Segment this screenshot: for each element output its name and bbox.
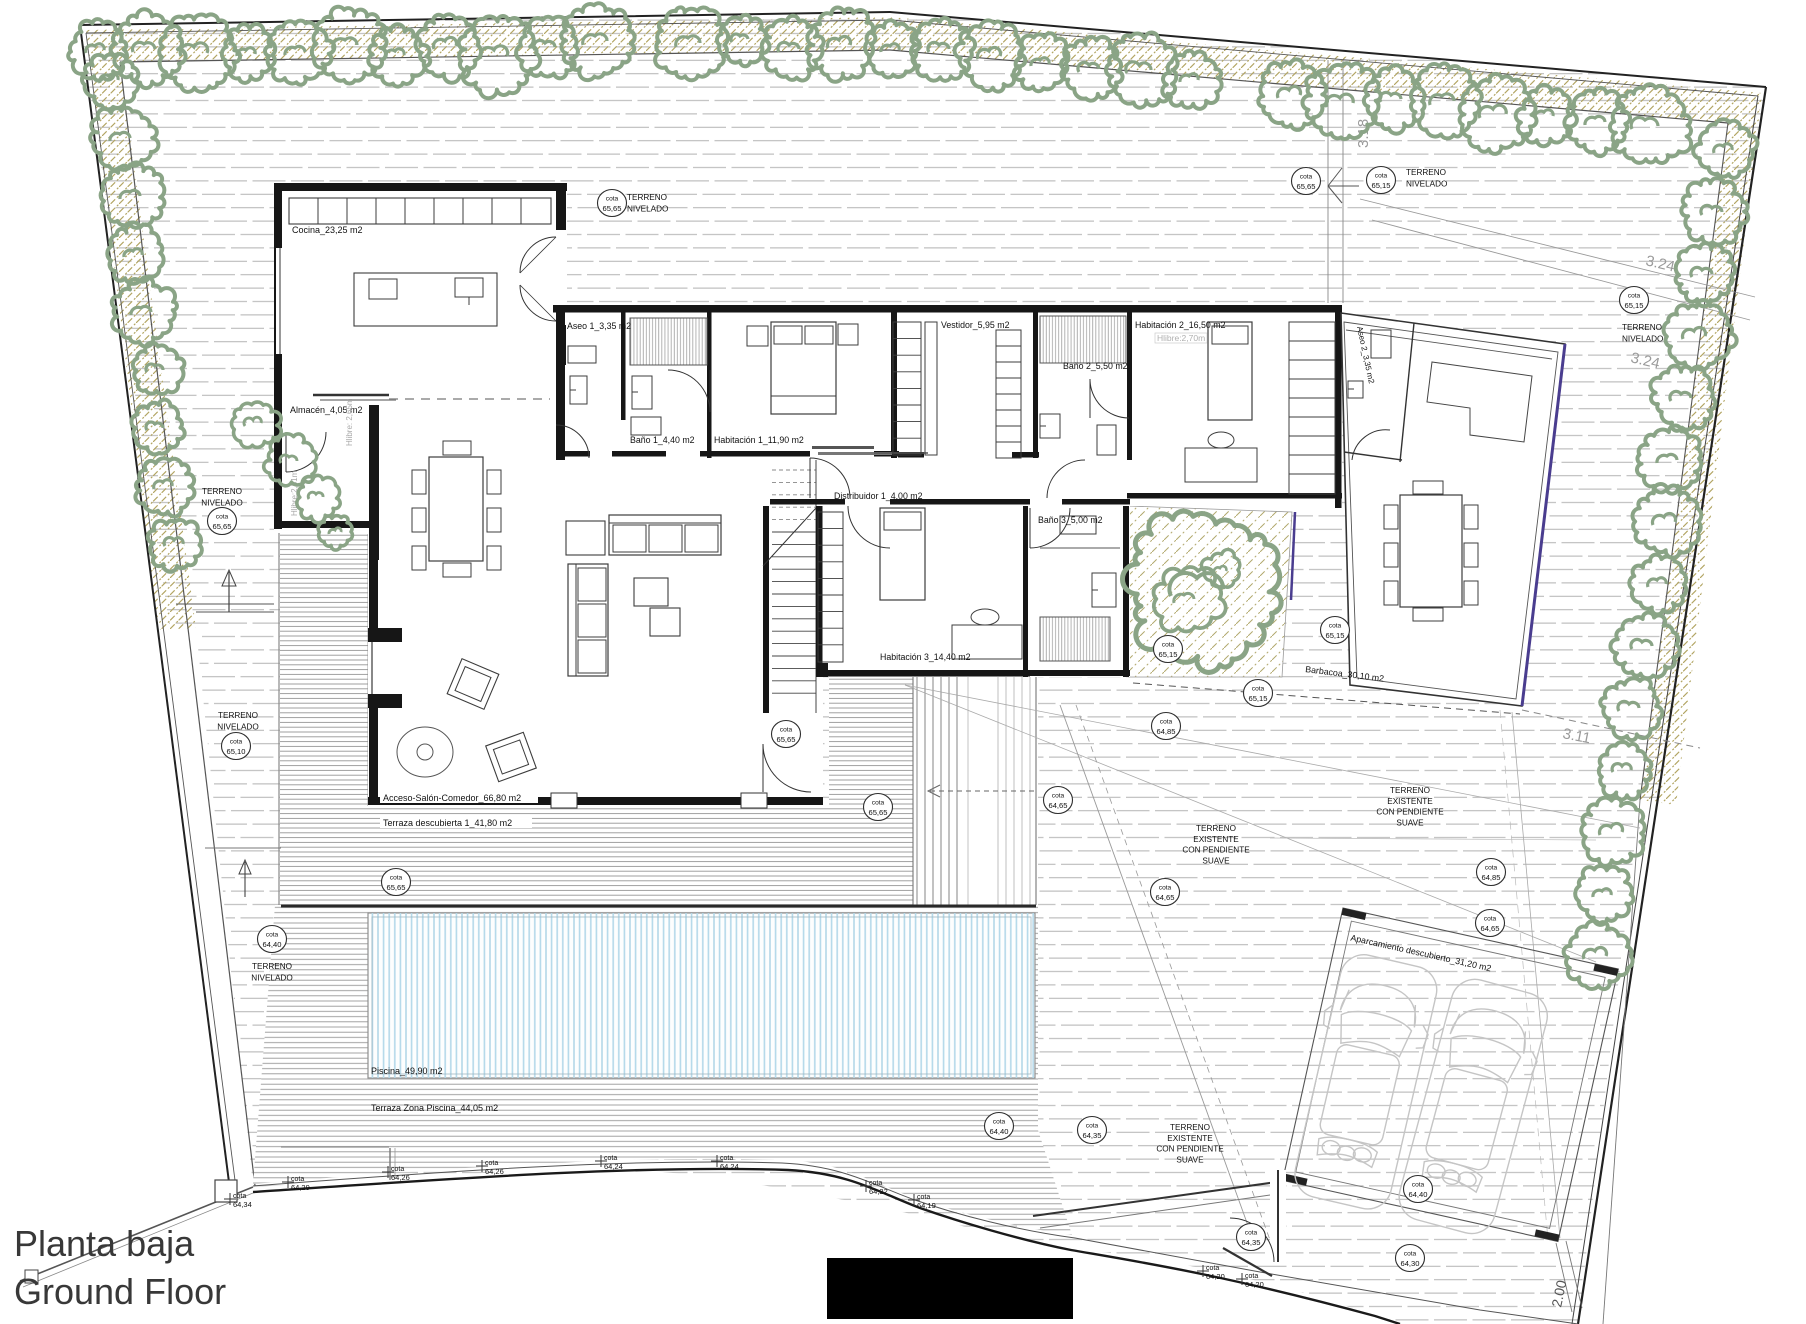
- svg-text:TERRENO: TERRENO: [1196, 824, 1236, 833]
- svg-text:64,65: 64,65: [1480, 924, 1499, 933]
- svg-text:64,24: 64,24: [720, 1162, 739, 1171]
- svg-text:cota: cota: [233, 1193, 246, 1200]
- svg-text:CON PENDIENTE: CON PENDIENTE: [1376, 808, 1444, 817]
- svg-text:SUAVE: SUAVE: [1176, 1155, 1204, 1164]
- svg-text:cota: cota: [1052, 793, 1065, 800]
- svg-text:Baño 1_4,40 m2: Baño 1_4,40 m2: [630, 435, 695, 445]
- svg-text:TERRENO: TERRENO: [218, 711, 258, 720]
- svg-text:64,40: 64,40: [262, 940, 281, 949]
- svg-text:cota: cota: [1086, 1123, 1099, 1130]
- svg-text:EXISTENTE: EXISTENTE: [1167, 1134, 1213, 1143]
- svg-text:Baño 3_5,00 m2: Baño 3_5,00 m2: [1038, 515, 1103, 525]
- svg-text:64,35: 64,35: [1241, 1238, 1260, 1247]
- svg-text:Distribuidor 1_4,00 m2: Distribuidor 1_4,00 m2: [834, 491, 923, 501]
- svg-text:cota: cota: [1375, 173, 1388, 180]
- svg-text:64,26: 64,26: [391, 1173, 410, 1182]
- svg-text:Aseo 1_3,35 m2: Aseo 1_3,35 m2: [567, 321, 631, 331]
- svg-text:Hlibre: 2,65m: Hlibre: 2,65m: [345, 398, 354, 446]
- svg-text:65,10: 65,10: [226, 747, 245, 756]
- svg-text:cota: cota: [780, 727, 793, 734]
- svg-text:NIVELADO: NIVELADO: [1622, 335, 1663, 344]
- svg-text:cota: cota: [872, 800, 885, 807]
- svg-text:64,20: 64,20: [1245, 1280, 1264, 1289]
- svg-text:cota: cota: [1412, 1182, 1425, 1189]
- svg-text:cota: cota: [1245, 1273, 1258, 1280]
- svg-text:TERRENO: TERRENO: [1170, 1123, 1210, 1132]
- svg-text:Acceso-Salón-Comedor_66,80 m2: Acceso-Salón-Comedor_66,80 m2: [383, 793, 521, 803]
- svg-text:64,35: 64,35: [1082, 1131, 1101, 1140]
- svg-text:Terraza Zona Piscina_44,05 m2: Terraza Zona Piscina_44,05 m2: [371, 1103, 498, 1113]
- svg-text:cota: cota: [869, 1180, 882, 1187]
- svg-text:TERRENO: TERRENO: [627, 193, 667, 202]
- svg-text:64,20: 64,20: [1206, 1272, 1225, 1281]
- svg-text:cota: cota: [230, 739, 243, 746]
- svg-text:65,65: 65,65: [602, 204, 621, 213]
- svg-text:NIVELADO: NIVELADO: [201, 499, 242, 508]
- svg-text:cota: cota: [485, 1160, 498, 1167]
- svg-text:Baño 2_5,50 m2: Baño 2_5,50 m2: [1063, 361, 1128, 371]
- svg-text:65,15: 65,15: [1248, 694, 1267, 703]
- svg-text:cota: cota: [1628, 293, 1641, 300]
- svg-text:64,24: 64,24: [604, 1162, 623, 1171]
- svg-text:NIVELADO: NIVELADO: [1406, 180, 1447, 189]
- svg-text:cota: cota: [1245, 1230, 1258, 1237]
- svg-text:cota: cota: [1206, 1265, 1219, 1272]
- svg-text:cota: cota: [216, 514, 229, 521]
- svg-text:NIVELADO: NIVELADO: [251, 974, 292, 983]
- svg-text:64,85: 64,85: [1156, 727, 1175, 736]
- svg-text:cota: cota: [291, 1176, 304, 1183]
- svg-text:TERRENO: TERRENO: [1390, 786, 1430, 795]
- svg-text:64,34: 64,34: [233, 1200, 252, 1209]
- svg-text:cota: cota: [390, 875, 403, 882]
- svg-text:65,65: 65,65: [776, 735, 795, 744]
- svg-text:Planta baja: Planta baja: [14, 1223, 195, 1264]
- svg-text:CON PENDIENTE: CON PENDIENTE: [1156, 1145, 1224, 1154]
- svg-text:cota: cota: [1160, 719, 1173, 726]
- svg-text:Terraza descubierta 1_41,80 m2: Terraza descubierta 1_41,80 m2: [383, 818, 512, 828]
- svg-text:TERRENO: TERRENO: [1622, 323, 1662, 332]
- svg-text:Vestidor_5,95 m2: Vestidor_5,95 m2: [941, 320, 1010, 330]
- svg-text:64,22: 64,22: [869, 1187, 888, 1196]
- svg-text:TERRENO: TERRENO: [1406, 168, 1446, 177]
- svg-text:Habitación 1_11,90 m2: Habitación 1_11,90 m2: [714, 435, 804, 445]
- svg-text:cota: cota: [1484, 916, 1497, 923]
- svg-text:SUAVE: SUAVE: [1396, 818, 1424, 827]
- svg-text:Habitación 3_14,40 m2: Habitación 3_14,40 m2: [880, 652, 971, 662]
- svg-text:64,85: 64,85: [1481, 873, 1500, 882]
- svg-text:65,15: 65,15: [1158, 650, 1177, 659]
- svg-text:CON PENDIENTE: CON PENDIENTE: [1182, 846, 1250, 855]
- svg-text:64,65: 64,65: [1048, 801, 1067, 810]
- svg-text:cota: cota: [720, 1155, 733, 1162]
- svg-text:65,15: 65,15: [1624, 301, 1643, 310]
- svg-text:cota: cota: [1252, 686, 1265, 693]
- svg-text:cota: cota: [993, 1119, 1006, 1126]
- svg-text:65,65: 65,65: [386, 883, 405, 892]
- svg-text:Habitación 2_16,50 m2: Habitación 2_16,50 m2: [1135, 320, 1226, 330]
- svg-text:cota: cota: [917, 1194, 930, 1201]
- svg-text:65,65: 65,65: [212, 522, 231, 531]
- svg-text:Cocina_23,25 m2: Cocina_23,25 m2: [292, 225, 363, 235]
- svg-text:Hlibre:2,70m: Hlibre:2,70m: [1157, 333, 1205, 343]
- svg-text:cota: cota: [1329, 623, 1342, 630]
- svg-text:cota: cota: [1404, 1251, 1417, 1258]
- svg-text:cota: cota: [604, 1155, 617, 1162]
- svg-text:NIVELADO: NIVELADO: [217, 723, 258, 732]
- svg-text:65,15: 65,15: [1325, 631, 1344, 640]
- svg-text:TERRENO: TERRENO: [252, 962, 292, 971]
- svg-text:65,65: 65,65: [1296, 182, 1315, 191]
- svg-text:cota: cota: [1485, 865, 1498, 872]
- svg-text:SUAVE: SUAVE: [1202, 856, 1230, 865]
- svg-text:65,65: 65,65: [868, 808, 887, 817]
- svg-text:EXISTENTE: EXISTENTE: [1193, 835, 1239, 844]
- svg-text:Piscina_49,90 m2: Piscina_49,90 m2: [371, 1066, 443, 1076]
- svg-text:Ground Floor: Ground Floor: [14, 1271, 226, 1312]
- svg-text:64,40: 64,40: [989, 1127, 1008, 1136]
- svg-text:64,29: 64,29: [291, 1183, 310, 1192]
- svg-text:64,26: 64,26: [485, 1167, 504, 1176]
- svg-text:cota: cota: [266, 932, 279, 939]
- svg-text:TERRENO: TERRENO: [202, 487, 242, 496]
- svg-text:64,19: 64,19: [917, 1201, 936, 1210]
- svg-text:cota: cota: [391, 1166, 404, 1173]
- svg-text:cota: cota: [1162, 642, 1175, 649]
- svg-text:64,40: 64,40: [1408, 1190, 1427, 1199]
- svg-text:65,15: 65,15: [1371, 181, 1390, 190]
- svg-text:64,65: 64,65: [1155, 893, 1174, 902]
- svg-text:cota: cota: [1300, 174, 1313, 181]
- svg-text:NIVELADO: NIVELADO: [627, 205, 668, 214]
- svg-text:EXISTENTE: EXISTENTE: [1387, 797, 1433, 806]
- svg-text:cota: cota: [606, 196, 619, 203]
- svg-text:cota: cota: [1159, 885, 1172, 892]
- svg-text:64,30: 64,30: [1400, 1259, 1419, 1268]
